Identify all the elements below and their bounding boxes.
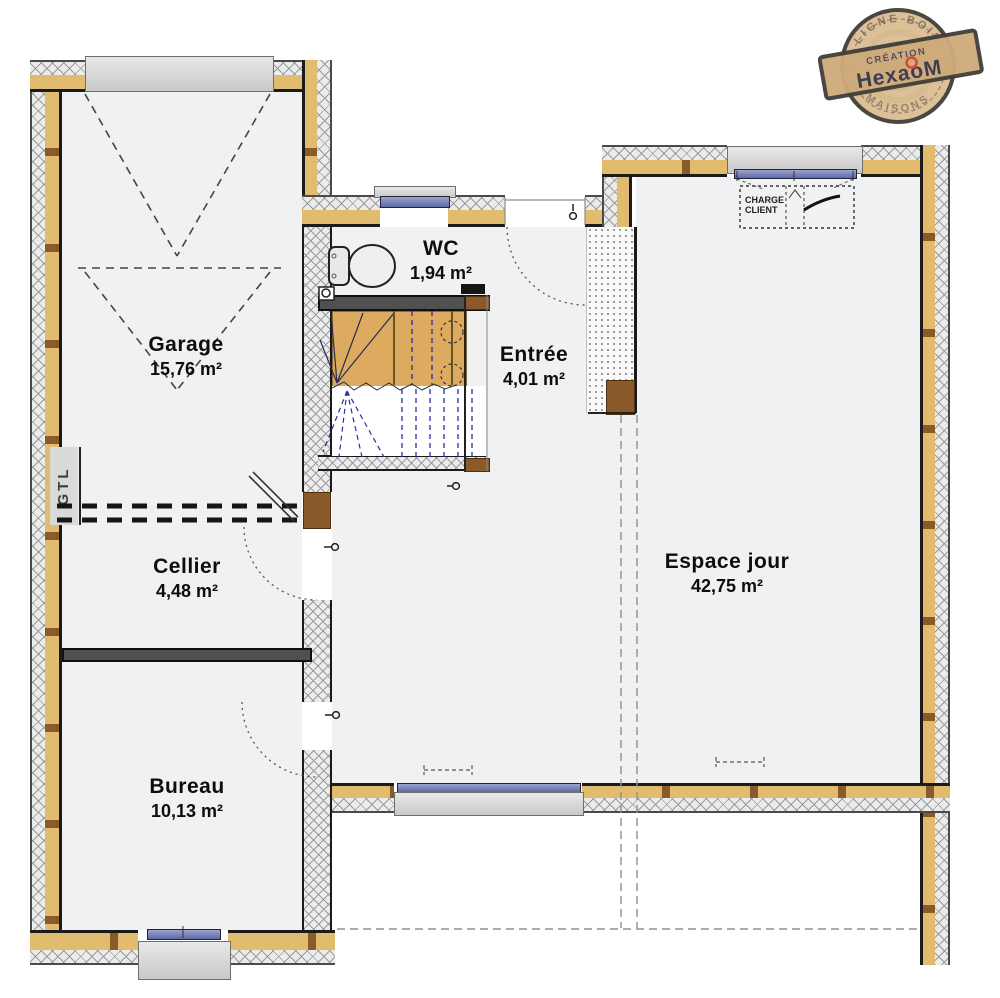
wall-top-garage-a	[30, 60, 85, 92]
room-area: 42,75 m²	[627, 575, 827, 598]
room-name: Garage	[96, 332, 276, 358]
window-glass	[147, 929, 221, 940]
wall-top-espace-a	[602, 145, 727, 177]
bay-window-sill	[394, 792, 584, 816]
staircase-lower-flight	[332, 386, 486, 456]
room-name: Cellier	[97, 554, 277, 580]
room-name: Entrée	[454, 342, 614, 368]
room-label-espace-jour: Espace jour 42,75 m²	[627, 549, 827, 598]
wood-post	[303, 492, 331, 529]
window-glass	[734, 169, 857, 179]
staircase-upper-flight	[332, 311, 467, 387]
wall-stairs-south	[318, 455, 486, 471]
garage-door-panel	[85, 56, 274, 92]
room-name: Espace jour	[627, 549, 827, 575]
room-label-garage: Garage 15,76 m²	[96, 332, 276, 381]
room-area: 4,01 m²	[454, 368, 614, 391]
hexaom-stamp: LIGNE BOIS MAISONS CRÉATION HexaoM	[818, 2, 998, 132]
room-label-entree: Entrée 4,01 m²	[454, 342, 614, 391]
room-area: 15,76 m²	[96, 358, 276, 381]
wood-post	[464, 458, 490, 472]
window-sill	[138, 941, 231, 980]
room-area: 4,48 m²	[97, 580, 277, 603]
wall-bottom-espace-b	[582, 783, 950, 813]
wall-top-wc-a	[302, 195, 380, 227]
room-label-wc: WC 1,94 m²	[371, 236, 511, 285]
wall-bottom-bureau-b	[228, 930, 335, 965]
room-label-cellier: Cellier 4,48 m²	[97, 554, 277, 603]
room-area: 10,13 m²	[97, 800, 277, 823]
espace-jour-floor	[636, 177, 920, 783]
front-door-jambs	[505, 197, 585, 225]
partition-garage-hall	[302, 227, 332, 492]
room-name: Bureau	[97, 774, 277, 800]
window-glass	[380, 196, 450, 208]
floor-plan: GTL	[0, 0, 1000, 998]
room-label-bureau: Bureau 10,13 m²	[97, 774, 277, 823]
wall-bottom-bureau-a	[30, 930, 138, 965]
wall-cellier-bureau	[62, 648, 312, 662]
wood-post	[464, 296, 490, 310]
wall-top-wc-b	[448, 195, 505, 227]
gtl-duct-label: GTL	[50, 447, 78, 525]
room-name: WC	[371, 236, 511, 262]
partition-bureau-hall	[302, 750, 332, 930]
room-area: 1,94 m²	[371, 262, 511, 285]
wall-right	[920, 145, 950, 965]
